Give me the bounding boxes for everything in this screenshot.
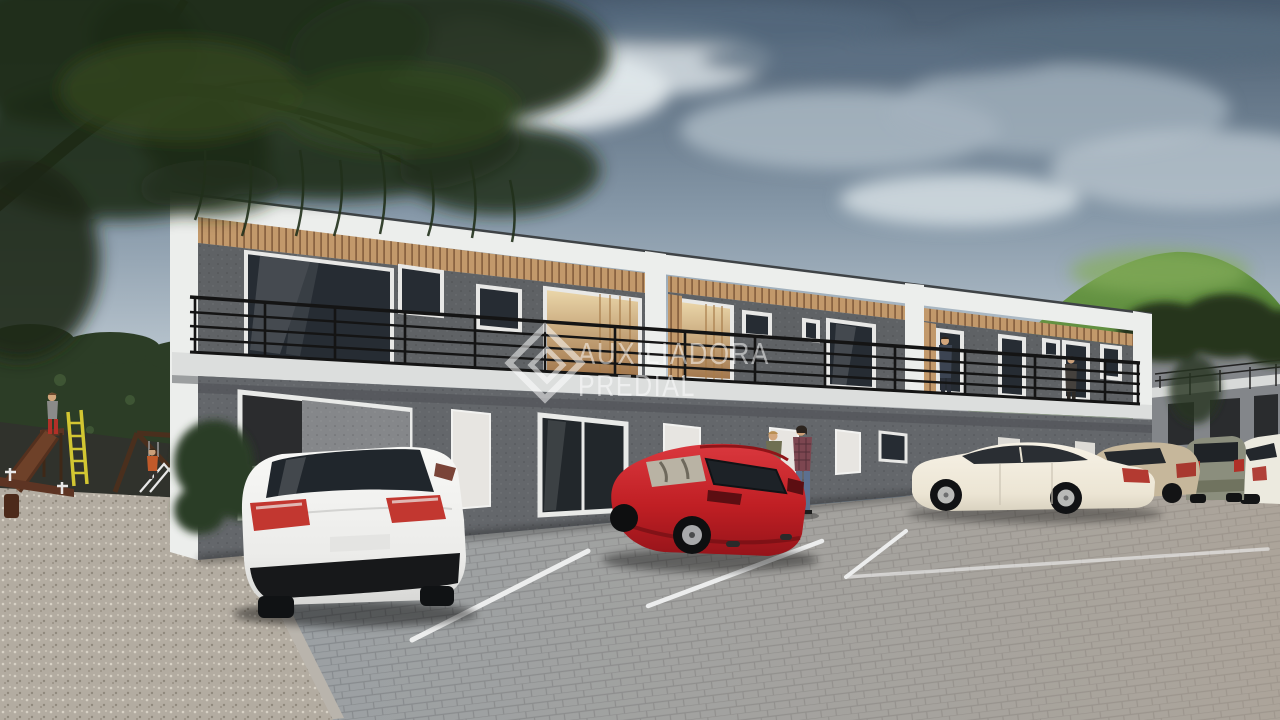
window-upper-3	[744, 312, 770, 337]
window-upper-4	[804, 320, 818, 341]
license-plate	[330, 534, 390, 552]
suv-rear-window	[1194, 442, 1238, 463]
window-ground-1	[880, 432, 906, 462]
exhaust-right	[780, 534, 792, 540]
suv-taillight-right	[1234, 459, 1244, 472]
exhaust-left	[726, 541, 740, 547]
window-upper-1	[400, 266, 442, 316]
watermark-line2: PREDIAL	[578, 368, 696, 403]
hill-highlight	[1070, 250, 1250, 294]
render-scene: AUXILIADORA PREDIAL	[0, 0, 1280, 720]
white-sedan-rear	[233, 447, 477, 627]
seesaw-post	[4, 494, 19, 518]
bg-opening-3	[1254, 394, 1278, 441]
beige-taillight	[1176, 462, 1196, 478]
cream-sedan-taillight	[1122, 468, 1150, 483]
coupe-taillight	[1252, 466, 1267, 481]
window-upper-2	[478, 286, 520, 331]
watermark-line1: AUXILIADORA	[578, 336, 770, 371]
window-upper-5	[1044, 340, 1058, 357]
scene-canvas: AUXILIADORA PREDIAL	[0, 0, 1280, 720]
entry-door-4	[836, 430, 860, 474]
